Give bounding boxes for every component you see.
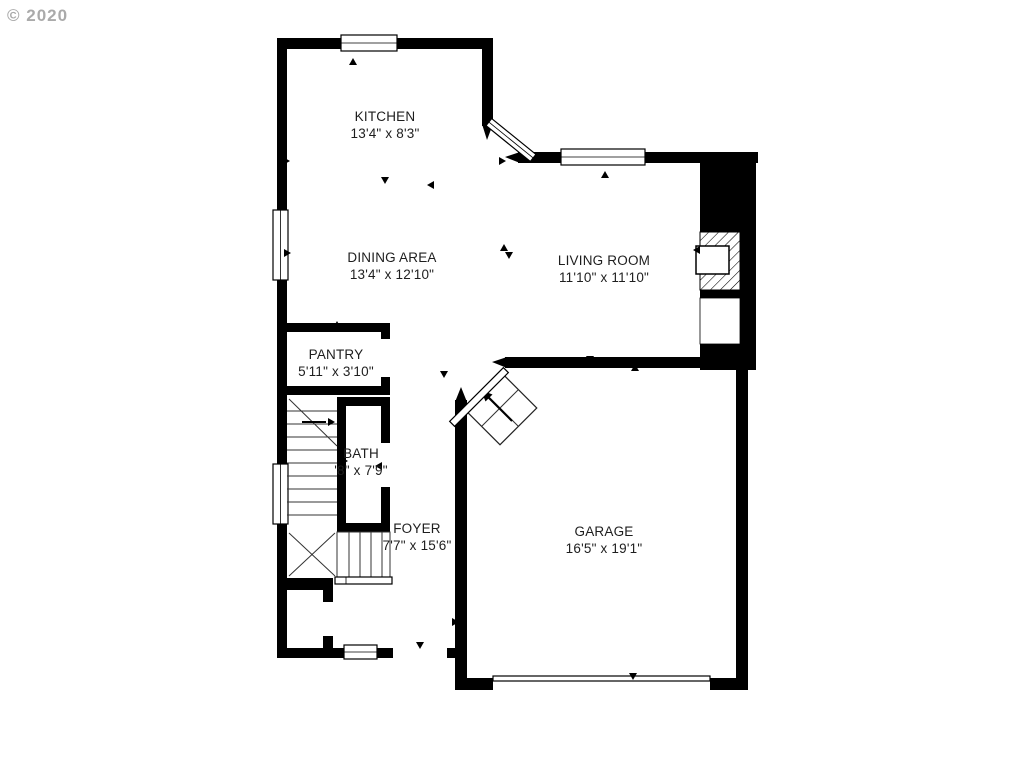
floor-plan-drawing [0,0,1024,768]
room-name: BATH [343,446,379,461]
window-living-top [561,149,645,165]
room-name: KITCHEN [355,109,416,124]
room-name: GARAGE [575,524,634,539]
garage-door [493,676,710,681]
room-label-dining-area: DINING AREA 13'4" x 12'10" [347,249,436,283]
fireplace [696,232,740,344]
room-name: DINING AREA [347,250,436,265]
window-stair-left [273,464,288,524]
firebox [696,246,729,274]
room-dimensions: 13'4" x 12'10" [350,267,434,282]
room-label-foyer: FOYER 7'7" x 15'6" [383,520,452,554]
room-dimensions: 11'10" x 11'10" [559,270,649,285]
window-kitchen-top [341,35,397,51]
room-dimensions: '8" x 7'9" [334,463,388,478]
window-dining-left [273,210,288,280]
room-dimensions: 13'4" x 8'3" [351,126,420,141]
window-foyer-bottom [344,645,377,659]
room-label-kitchen: KITCHEN 13'4" x 8'3" [351,108,420,142]
room-name: PANTRY [309,347,364,362]
room-dimensions: 16'5" x 19'1" [566,541,643,556]
media-niche [700,298,740,344]
room-label-living-room: LIVING ROOM 11'10" x 11'10" [558,252,650,286]
room-dimensions: 5'11" x 3'10" [298,364,374,379]
stair-handrail [335,577,392,584]
room-name: FOYER [393,521,441,536]
room-name: LIVING ROOM [558,253,650,268]
room-label-garage: GARAGE 16'5" x 19'1" [566,523,643,557]
room-label-bath: BATH '8" x 7'9" [334,445,388,479]
room-dimensions: 7'7" x 15'6" [383,538,452,553]
room-label-pantry: PANTRY 5'11" x 3'10" [298,346,374,380]
